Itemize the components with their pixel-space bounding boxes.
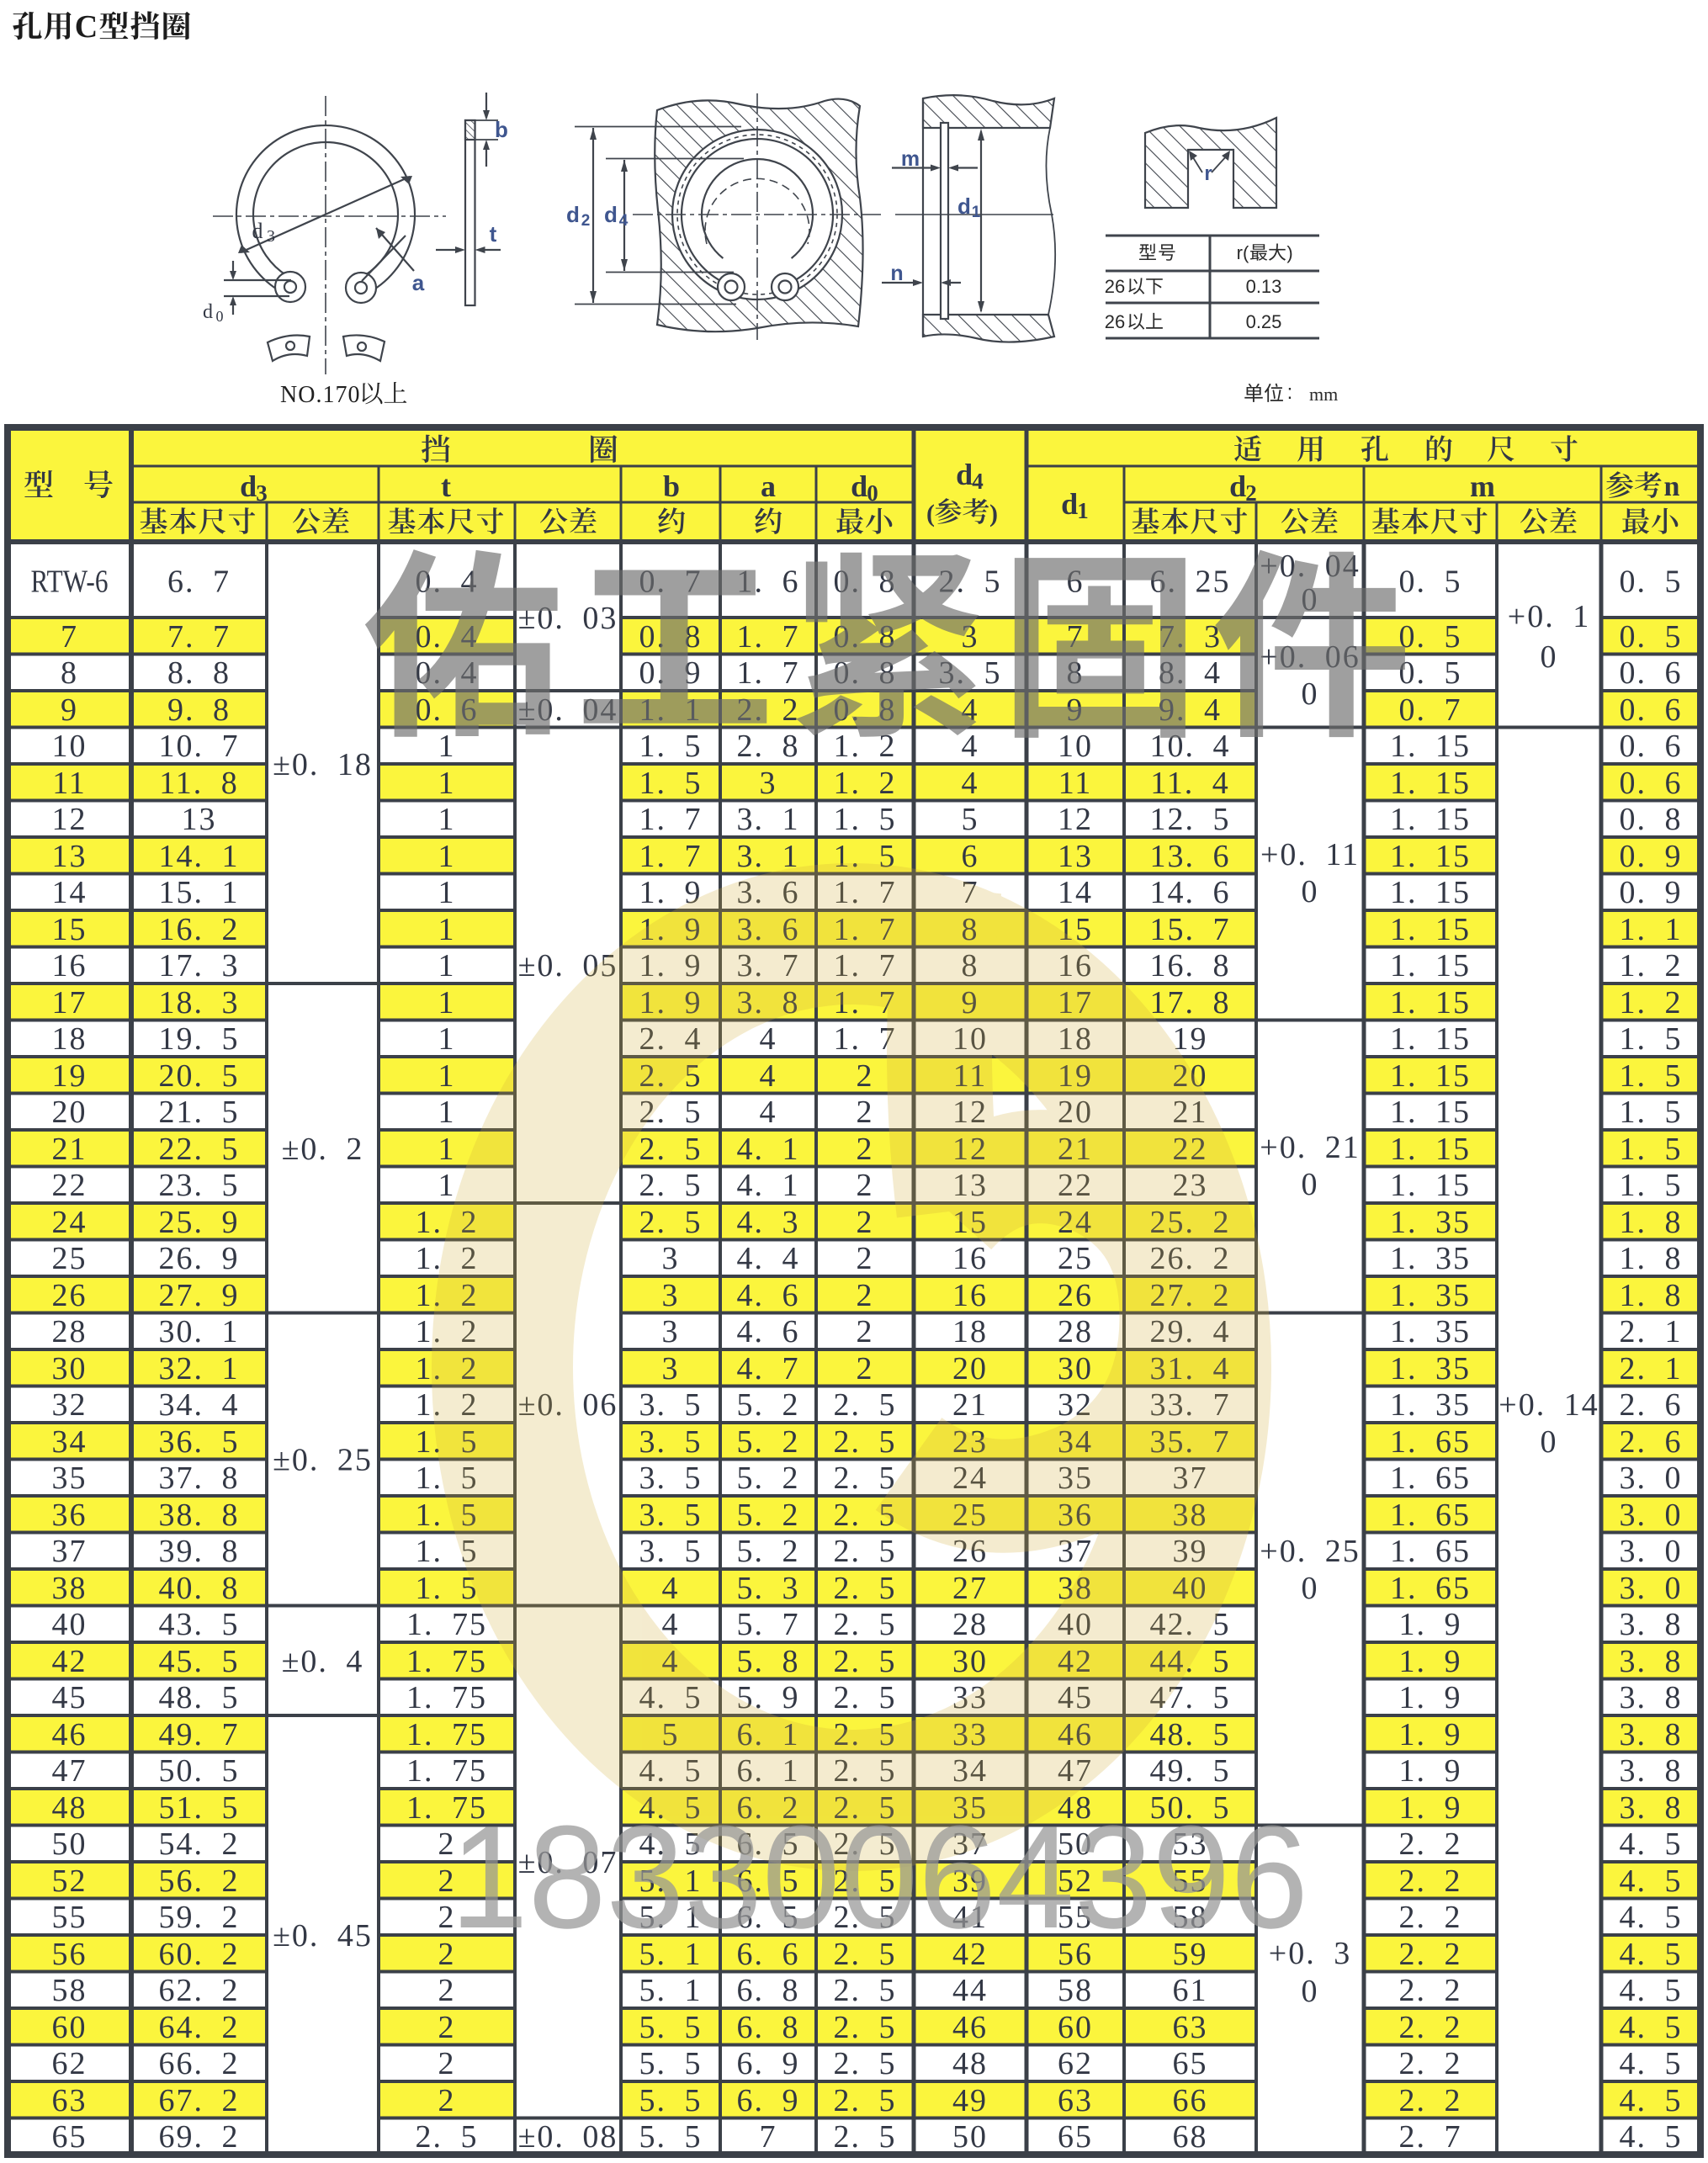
svg-text:58: 58 — [52, 1973, 88, 2008]
svg-text:0. 8: 0. 8 — [1620, 802, 1683, 837]
svg-text:0: 0 — [1302, 1974, 1319, 2009]
svg-text:3: 3 — [256, 480, 268, 506]
svg-text:3. 0: 3. 0 — [1620, 1498, 1683, 1533]
svg-text:2. 5: 2. 5 — [834, 1387, 897, 1423]
svg-text:1. 65: 1. 65 — [1390, 1498, 1471, 1533]
svg-text:mm: mm — [1309, 384, 1338, 405]
svg-text:5. 2: 5. 2 — [737, 1534, 800, 1569]
svg-text:4. 5: 4. 5 — [1620, 1863, 1683, 1899]
svg-text:4. 5: 4. 5 — [1620, 2083, 1683, 2118]
svg-text:1: 1 — [438, 1095, 456, 1130]
svg-text:5. 2: 5. 2 — [737, 1498, 800, 1533]
svg-text:0. 5: 0. 5 — [1620, 619, 1683, 655]
svg-text:3. 5: 3. 5 — [639, 1424, 703, 1460]
svg-text:43. 5: 43. 5 — [159, 1607, 240, 1642]
svg-text:5. 3: 5. 3 — [737, 1571, 800, 1606]
svg-text:38: 38 — [52, 1571, 88, 1606]
svg-text:19. 5: 19. 5 — [159, 1021, 240, 1057]
svg-text:1. 5: 1. 5 — [416, 1571, 479, 1606]
svg-text:2: 2 — [438, 2046, 456, 2081]
svg-text:44: 44 — [952, 1973, 988, 2008]
svg-text:2: 2 — [857, 1095, 874, 1130]
svg-text:0. 5: 0. 5 — [1620, 565, 1683, 600]
svg-text:4. 5: 4. 5 — [1620, 1937, 1683, 1972]
svg-text:62: 62 — [52, 2046, 88, 2081]
svg-text:0: 0 — [867, 480, 878, 506]
svg-text:37: 37 — [52, 1534, 88, 1569]
svg-text:2. 2: 2. 2 — [1399, 1937, 1462, 1972]
svg-text:32: 32 — [52, 1387, 88, 1423]
svg-text:2: 2 — [857, 1132, 874, 1167]
svg-text:2: 2 — [857, 1278, 874, 1313]
svg-text:2: 2 — [857, 1168, 874, 1203]
svg-text:49. 5: 49. 5 — [1150, 1753, 1231, 1789]
svg-text:2. 2: 2. 2 — [1399, 1863, 1462, 1899]
svg-text:4. 1: 4. 1 — [737, 1132, 800, 1167]
svg-text:5. 2: 5. 2 — [737, 1424, 800, 1460]
svg-text:65: 65 — [52, 2119, 88, 2155]
svg-text:C: C — [75, 9, 98, 45]
svg-text:65: 65 — [1058, 2119, 1093, 2155]
svg-text:d: d — [957, 194, 971, 219]
svg-text:49. 7: 49. 7 — [159, 1717, 240, 1752]
svg-text:n: n — [1664, 471, 1680, 502]
svg-text:21. 5: 21. 5 — [159, 1095, 240, 1130]
svg-text:1. 15: 1. 15 — [1390, 802, 1471, 837]
svg-text:+0. 21: +0. 21 — [1260, 1130, 1360, 1165]
svg-text:61: 61 — [1173, 1973, 1208, 2008]
svg-text:4: 4 — [619, 212, 629, 230]
svg-text:18: 18 — [952, 1314, 988, 1349]
svg-text:0. 9: 0. 9 — [1620, 875, 1683, 910]
svg-text:7: 7 — [61, 619, 78, 655]
svg-text:1. 15: 1. 15 — [1390, 875, 1471, 910]
svg-text:2. 5: 2. 5 — [834, 2083, 897, 2118]
svg-text:16. 2: 16. 2 — [159, 912, 240, 947]
svg-text:2. 2: 2. 2 — [1399, 2010, 1462, 2045]
svg-text:6. 9: 6. 9 — [737, 2083, 800, 2118]
svg-text:14. 1: 14. 1 — [159, 839, 240, 874]
svg-text:1. 15: 1. 15 — [1390, 766, 1471, 801]
svg-text:+0. 1: +0. 1 — [1508, 599, 1590, 634]
svg-text:13: 13 — [52, 839, 88, 874]
svg-text:2. 5: 2. 5 — [639, 1132, 703, 1167]
svg-text:10: 10 — [1058, 729, 1093, 764]
svg-text:65: 65 — [1173, 2046, 1208, 2081]
svg-text:4. 6: 4. 6 — [737, 1278, 800, 1313]
svg-text:25: 25 — [52, 1241, 88, 1276]
svg-text:n: n — [890, 262, 903, 285]
svg-text:1: 1 — [438, 1021, 456, 1057]
svg-text:8. 8: 8. 8 — [167, 655, 231, 691]
svg-text:2. 5: 2. 5 — [834, 1680, 897, 1715]
svg-text:17. 8: 17. 8 — [1150, 985, 1231, 1021]
svg-text:5. 7: 5. 7 — [737, 1607, 800, 1642]
svg-text:2: 2 — [857, 1205, 874, 1240]
svg-text:1. 65: 1. 65 — [1390, 1424, 1471, 1460]
svg-text:46: 46 — [952, 2010, 988, 2045]
svg-text:22: 22 — [52, 1168, 88, 1203]
svg-text:2. 7: 2. 7 — [1399, 2119, 1462, 2155]
svg-text:d: d — [956, 458, 973, 491]
svg-text:1. 9: 1. 9 — [1399, 1790, 1462, 1826]
svg-text:1. 5: 1. 5 — [639, 729, 703, 764]
svg-text:0. 6: 0. 6 — [1620, 692, 1683, 728]
svg-text:45. 5: 45. 5 — [159, 1644, 240, 1679]
svg-text:0.25: 0.25 — [1246, 311, 1282, 332]
svg-text:36: 36 — [52, 1498, 88, 1533]
svg-text:26: 26 — [1058, 1278, 1093, 1313]
svg-text:60. 2: 60. 2 — [159, 1937, 240, 1972]
svg-text:25. 9: 25. 9 — [159, 1205, 240, 1240]
svg-text:25: 25 — [1058, 1241, 1093, 1276]
svg-text:0. 7: 0. 7 — [1399, 692, 1462, 728]
svg-text:2. 5: 2. 5 — [639, 1205, 703, 1240]
svg-text:7. 7: 7. 7 — [167, 619, 231, 655]
svg-text:30: 30 — [952, 1644, 988, 1679]
svg-text:1. 5: 1. 5 — [639, 766, 703, 801]
svg-text:d: d — [1061, 487, 1078, 521]
svg-text:1. 5: 1. 5 — [1620, 1132, 1683, 1167]
svg-text:1: 1 — [438, 912, 456, 947]
svg-text:30. 1: 30. 1 — [159, 1314, 240, 1349]
svg-text:22. 5: 22. 5 — [159, 1132, 240, 1167]
svg-text:0: 0 — [1302, 874, 1319, 909]
svg-text:4. 5: 4. 5 — [1620, 1826, 1683, 1862]
svg-text:38. 8: 38. 8 — [159, 1498, 240, 1533]
svg-text:1. 75: 1. 75 — [406, 1680, 487, 1715]
svg-text:6. 8: 6. 8 — [737, 1973, 800, 2008]
svg-text:±0. 08: ±0. 08 — [518, 2119, 618, 2155]
svg-text:1: 1 — [972, 204, 981, 221]
svg-text:10. 7: 10. 7 — [159, 729, 240, 764]
svg-text:1: 1 — [1077, 498, 1089, 523]
svg-text:11. 4: 11. 4 — [1150, 766, 1230, 801]
svg-text:35: 35 — [52, 1461, 88, 1496]
svg-text:d: d — [566, 202, 580, 227]
svg-text:3. 5: 3. 5 — [639, 1498, 703, 1533]
svg-text:1: 1 — [438, 875, 456, 910]
svg-text:48. 5: 48. 5 — [1150, 1717, 1231, 1752]
svg-text:3: 3 — [760, 766, 777, 801]
svg-text:42: 42 — [52, 1644, 88, 1679]
svg-text:50: 50 — [952, 2119, 988, 2155]
svg-text:19: 19 — [52, 1058, 88, 1094]
svg-text:3. 5: 3. 5 — [639, 1387, 703, 1423]
svg-text:12: 12 — [1058, 802, 1093, 837]
svg-text:(: ( — [926, 500, 935, 527]
svg-text:10: 10 — [52, 729, 88, 764]
svg-text:40: 40 — [52, 1607, 88, 1642]
svg-text:0: 0 — [1541, 639, 1558, 675]
svg-text:27: 27 — [952, 1571, 988, 1606]
svg-text:0. 5: 0. 5 — [1399, 655, 1462, 691]
svg-text:2: 2 — [857, 1314, 874, 1349]
svg-text:2. 6: 2. 6 — [1620, 1387, 1683, 1423]
svg-text:1. 8: 1. 8 — [1620, 1205, 1683, 1240]
svg-text:0: 0 — [1302, 1167, 1319, 1202]
svg-text:16: 16 — [952, 1241, 988, 1276]
svg-text:62: 62 — [1058, 2046, 1093, 2081]
svg-text:1: 1 — [438, 1168, 456, 1203]
svg-text:56. 2: 56. 2 — [159, 1863, 240, 1899]
svg-text:14. 6: 14. 6 — [1150, 875, 1231, 910]
svg-text:3: 3 — [662, 1241, 680, 1276]
svg-text:1: 1 — [438, 948, 456, 983]
svg-text:52: 52 — [52, 1863, 88, 1899]
svg-text:0.13: 0.13 — [1246, 276, 1282, 297]
svg-text:3. 0: 3. 0 — [1620, 1571, 1683, 1606]
svg-text:1. 7: 1. 7 — [639, 802, 703, 837]
svg-text:2. 2: 2. 2 — [1399, 2083, 1462, 2118]
svg-text:68: 68 — [1173, 2119, 1208, 2155]
svg-text:32. 1: 32. 1 — [159, 1351, 240, 1386]
svg-text:3. 5: 3. 5 — [639, 1461, 703, 1496]
svg-text:1. 35: 1. 35 — [1390, 1205, 1471, 1240]
svg-text:1. 5: 1. 5 — [1620, 1058, 1683, 1094]
svg-text:±0. 4: ±0. 4 — [282, 1644, 364, 1679]
svg-text:2: 2 — [438, 2083, 456, 2118]
svg-text:4: 4 — [760, 1058, 777, 1094]
svg-text:2: 2 — [1245, 480, 1257, 506]
svg-text:1. 65: 1. 65 — [1390, 1534, 1471, 1569]
svg-text:4: 4 — [962, 766, 979, 801]
svg-text:1. 7: 1. 7 — [737, 655, 800, 691]
svg-text:1. 7: 1. 7 — [639, 839, 703, 874]
svg-text:28: 28 — [952, 1607, 988, 1642]
svg-text:1. 8: 1. 8 — [1620, 1278, 1683, 1313]
svg-text:r(: r( — [1237, 242, 1249, 263]
svg-text:m: m — [901, 147, 920, 171]
svg-text:1. 15: 1. 15 — [1390, 985, 1471, 1021]
svg-text:b: b — [495, 117, 508, 142]
svg-text:±0. 45: ±0. 45 — [273, 1918, 373, 1954]
svg-text:5. 1: 5. 1 — [639, 1973, 703, 2008]
svg-text:2: 2 — [438, 1973, 456, 2008]
svg-text:3: 3 — [662, 1314, 680, 1349]
svg-text:3. 5: 3. 5 — [639, 1534, 703, 1569]
svg-text:4. 4: 4. 4 — [737, 1241, 800, 1276]
svg-text:3. 8: 3. 8 — [1620, 1680, 1683, 1715]
svg-text:2. 5: 2. 5 — [834, 1424, 897, 1460]
svg-text:t: t — [441, 469, 451, 503]
svg-text:48: 48 — [952, 2046, 988, 2081]
svg-text:51. 5: 51. 5 — [159, 1790, 240, 1826]
svg-text:5. 5: 5. 5 — [639, 2010, 703, 2045]
svg-text:21: 21 — [952, 1387, 988, 1423]
svg-text:1. 9: 1. 9 — [1399, 1607, 1462, 1642]
svg-text:2: 2 — [857, 1351, 874, 1386]
svg-text:): ) — [1286, 242, 1292, 263]
svg-text:3. 8: 3. 8 — [1620, 1717, 1683, 1752]
svg-text:58: 58 — [1058, 1973, 1093, 2008]
svg-text:4. 6: 4. 6 — [737, 1314, 800, 1349]
svg-text:2. 5: 2. 5 — [834, 1571, 897, 1606]
svg-text:4. 1: 4. 1 — [737, 1168, 800, 1203]
svg-text:1. 9: 1. 9 — [1399, 1644, 1462, 1679]
svg-text:±0. 2: ±0. 2 — [282, 1132, 364, 1167]
svg-text:1. 9: 1. 9 — [1399, 1680, 1462, 1715]
svg-text:30: 30 — [1058, 1351, 1093, 1386]
svg-text:26: 26 — [52, 1278, 88, 1313]
svg-text:1. 5: 1. 5 — [1620, 1021, 1683, 1057]
svg-text:8: 8 — [61, 655, 78, 691]
svg-text:2. 5: 2. 5 — [639, 1168, 703, 1203]
svg-text:20. 5: 20. 5 — [159, 1058, 240, 1094]
svg-text:1. 5: 1. 5 — [1620, 1168, 1683, 1203]
svg-text:0: 0 — [1302, 1571, 1319, 1606]
svg-text:34: 34 — [52, 1424, 88, 1460]
svg-text:b: b — [663, 469, 680, 503]
svg-text:d: d — [252, 219, 263, 243]
svg-text:66: 66 — [1173, 2083, 1208, 2118]
svg-text:1. 9: 1. 9 — [1399, 1717, 1462, 1752]
svg-text:0. 6: 0. 6 — [1620, 766, 1683, 801]
svg-text:7: 7 — [760, 2119, 777, 2155]
svg-text:3. 8: 3. 8 — [1620, 1644, 1683, 1679]
svg-text:39. 8: 39. 8 — [159, 1534, 240, 1569]
svg-text:1. 75: 1. 75 — [406, 1644, 487, 1679]
svg-text:63: 63 — [52, 2083, 88, 2118]
svg-text:5. 5: 5. 5 — [639, 2083, 703, 2118]
svg-text:15. 7: 15. 7 — [1150, 912, 1231, 947]
svg-text:1. 5: 1. 5 — [1620, 1095, 1683, 1130]
svg-text:40. 8: 40. 8 — [159, 1571, 240, 1606]
svg-text:2: 2 — [857, 1241, 874, 1276]
svg-text:28: 28 — [52, 1314, 88, 1349]
svg-text:13: 13 — [182, 802, 217, 837]
svg-text:3. 8: 3. 8 — [1620, 1753, 1683, 1789]
svg-text:16: 16 — [52, 948, 88, 983]
svg-text:60: 60 — [52, 2010, 88, 2045]
svg-text:11. 8: 11. 8 — [159, 766, 239, 801]
svg-text:2. 5: 2. 5 — [834, 1607, 897, 1642]
svg-text:3. 0: 3. 0 — [1620, 1461, 1683, 1496]
svg-text:2. 5: 2. 5 — [834, 2046, 897, 2081]
svg-text:1. 2: 1. 2 — [1620, 985, 1683, 1021]
svg-text:4: 4 — [962, 729, 979, 764]
svg-text:1. 15: 1. 15 — [1390, 729, 1471, 764]
svg-text:37. 8: 37. 8 — [159, 1461, 240, 1496]
svg-text:34. 4: 34. 4 — [159, 1387, 240, 1423]
svg-text:+0. 25: +0. 25 — [1260, 1534, 1360, 1569]
svg-text:2. 2: 2. 2 — [1399, 1826, 1462, 1862]
svg-text:1. 15: 1. 15 — [1390, 1095, 1471, 1130]
svg-text:4: 4 — [972, 469, 984, 494]
svg-text:56: 56 — [52, 1937, 88, 1972]
svg-text:5. 5: 5. 5 — [639, 2119, 703, 2155]
svg-text:+0. 14: +0. 14 — [1498, 1387, 1599, 1423]
svg-text:2. 5: 2. 5 — [834, 2010, 897, 2045]
svg-text:66. 2: 66. 2 — [159, 2046, 240, 2081]
svg-text:14: 14 — [1058, 875, 1093, 910]
svg-text:3. 8: 3. 8 — [1620, 1790, 1683, 1826]
svg-text:48: 48 — [52, 1790, 88, 1826]
svg-text:d: d — [604, 202, 618, 227]
svg-text:1. 7: 1. 7 — [737, 619, 800, 655]
svg-text:r: r — [1204, 162, 1212, 185]
svg-text:1. 35: 1. 35 — [1390, 1278, 1471, 1313]
svg-text:13: 13 — [1058, 839, 1093, 874]
svg-text:63: 63 — [1173, 2010, 1208, 2045]
svg-text:26: 26 — [1105, 311, 1125, 332]
svg-text:18330064396: 18330064396 — [450, 1795, 1308, 1959]
svg-text:55: 55 — [52, 1900, 88, 1935]
svg-text:1: 1 — [438, 802, 456, 837]
svg-text:2. 5: 2. 5 — [834, 1973, 897, 2008]
svg-text:1. 15: 1. 15 — [1390, 1132, 1471, 1167]
svg-text:54. 2: 54. 2 — [159, 1826, 240, 1862]
svg-text:a: a — [761, 469, 776, 503]
svg-text:21: 21 — [52, 1132, 88, 1167]
svg-text:12. 5: 12. 5 — [1150, 802, 1231, 837]
svg-text:18: 18 — [52, 1021, 88, 1057]
svg-text:4. 5: 4. 5 — [1620, 1900, 1683, 1935]
svg-text:NO.170: NO.170 — [280, 382, 360, 408]
svg-text:1: 1 — [438, 729, 456, 764]
svg-text:1. 15: 1. 15 — [1390, 1058, 1471, 1094]
svg-text:0. 6: 0. 6 — [1620, 729, 1683, 764]
svg-text:2: 2 — [581, 212, 591, 230]
svg-text:69. 2: 69. 2 — [159, 2119, 240, 2155]
svg-text:1. 2: 1. 2 — [1620, 948, 1683, 983]
svg-text:3. 1: 3. 1 — [737, 802, 800, 837]
svg-text:4. 3: 4. 3 — [737, 1205, 800, 1240]
svg-text:1. 35: 1. 35 — [1390, 1387, 1471, 1423]
svg-text:17: 17 — [52, 985, 88, 1021]
svg-text:15: 15 — [52, 912, 88, 947]
svg-text:1. 35: 1. 35 — [1390, 1314, 1471, 1349]
svg-text:11: 11 — [52, 766, 87, 801]
svg-text:30: 30 — [52, 1351, 88, 1386]
svg-text:1: 1 — [438, 985, 456, 1021]
svg-text:15. 1: 15. 1 — [159, 875, 240, 910]
svg-text:5: 5 — [962, 802, 979, 837]
svg-text:16. 8: 16. 8 — [1150, 948, 1231, 983]
svg-text:0: 0 — [1541, 1424, 1558, 1460]
svg-text:1. 1: 1. 1 — [1620, 912, 1683, 947]
svg-text:5. 2: 5. 2 — [737, 1387, 800, 1423]
svg-text:a: a — [412, 270, 425, 295]
svg-text:4. 5: 4. 5 — [1620, 2046, 1683, 2081]
svg-text:67. 2: 67. 2 — [159, 2083, 240, 2118]
svg-text:+0. 11: +0. 11 — [1260, 837, 1360, 872]
svg-text:1. 5: 1. 5 — [834, 802, 897, 837]
svg-text:36. 5: 36. 5 — [159, 1424, 240, 1460]
svg-text:11: 11 — [1058, 766, 1093, 801]
svg-text:d: d — [203, 301, 213, 323]
svg-text:2. 5: 2. 5 — [834, 1644, 897, 1679]
svg-text:1. 8: 1. 8 — [1620, 1241, 1683, 1276]
svg-text:6. 7: 6. 7 — [167, 565, 231, 600]
svg-text:4. 5: 4. 5 — [1620, 2119, 1683, 2155]
svg-text:1: 1 — [438, 1132, 456, 1167]
svg-text:2. 5: 2. 5 — [834, 1461, 897, 1496]
svg-text:20: 20 — [52, 1095, 88, 1130]
svg-text:0. 5: 0. 5 — [1399, 619, 1462, 655]
svg-text:46: 46 — [52, 1717, 88, 1752]
svg-text:2. 5: 2. 5 — [416, 2119, 479, 2155]
svg-text:1. 75: 1. 75 — [406, 1607, 487, 1642]
svg-text:2: 2 — [438, 2010, 456, 2045]
svg-text:±0. 18: ±0. 18 — [273, 747, 373, 782]
svg-text:4. 5: 4. 5 — [1620, 2010, 1683, 2045]
svg-text::: : — [1287, 381, 1293, 404]
svg-text:d: d — [851, 469, 867, 503]
svg-text:5. 2: 5. 2 — [737, 1461, 800, 1496]
svg-text:1. 15: 1. 15 — [1390, 1021, 1471, 1057]
svg-text:2. 5: 2. 5 — [834, 2119, 897, 2155]
